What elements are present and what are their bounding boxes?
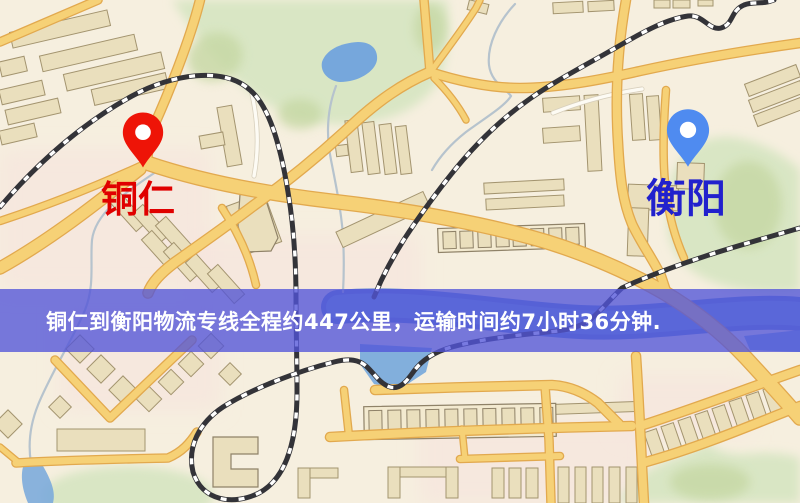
map-canvas[interactable]: 铜仁 衡阳 铜仁到衡阳物流专线全程约447公里，运输时间约7小时36分钟. (0, 0, 800, 503)
origin-pin-icon[interactable] (121, 112, 165, 168)
route-info-text: 铜仁到衡阳物流专线全程约447公里，运输时间约7小时36分钟. (0, 306, 661, 336)
destination-pin-icon[interactable] (665, 109, 711, 167)
route-info-banner: 铜仁到衡阳物流专线全程约447公里，运输时间约7小时36分钟. (0, 289, 800, 352)
map-graphics (0, 0, 800, 503)
